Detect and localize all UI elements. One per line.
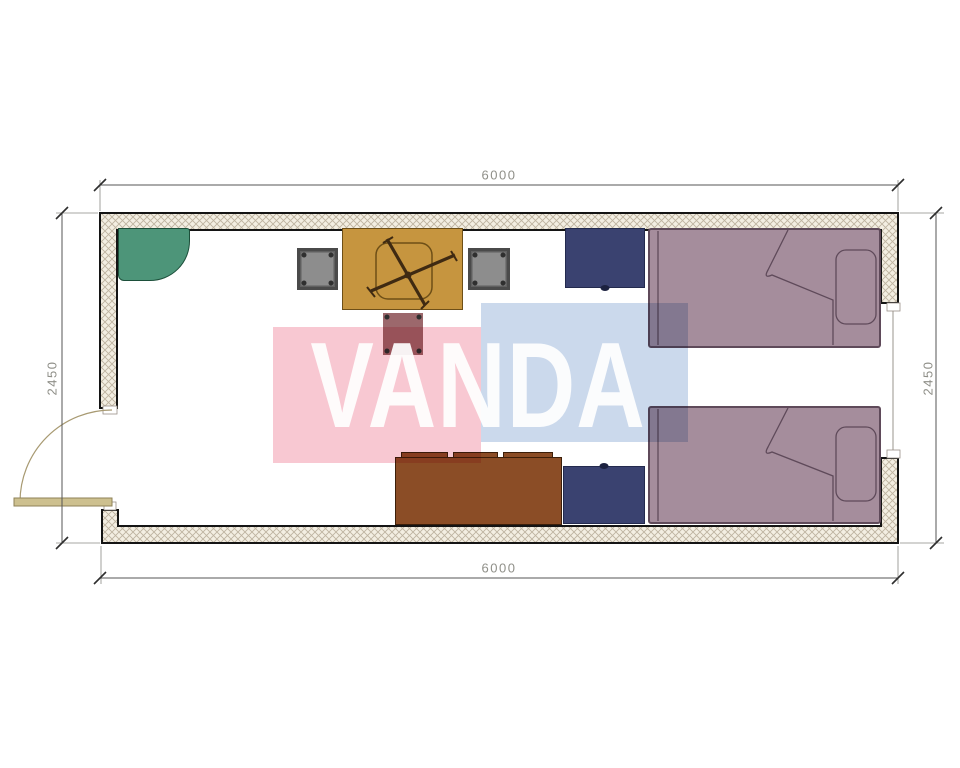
dimension-label-left: 2450 <box>45 361 60 396</box>
window-jamb-top <box>887 303 900 311</box>
door-swing-arc <box>20 410 112 502</box>
watermark-text: VANDA <box>310 324 645 446</box>
dimension-top <box>94 179 904 211</box>
dimension-label-bottom: 6000 <box>482 561 517 576</box>
dimension-label-top: 6000 <box>482 168 517 183</box>
window-jamb-bottom <box>887 450 900 458</box>
dimension-label-right: 2450 <box>921 361 936 396</box>
floor-plan-canvas: 6000 6000 2450 2450 <box>0 0 960 768</box>
chair-left <box>297 248 338 290</box>
office-chair-icon <box>343 229 464 311</box>
nightstand-bottom <box>563 466 645 524</box>
door-leaf <box>14 498 112 506</box>
desk <box>342 228 463 310</box>
sofa-body <box>395 457 562 525</box>
nightstand-top <box>565 228 645 288</box>
chair-right <box>468 248 510 290</box>
